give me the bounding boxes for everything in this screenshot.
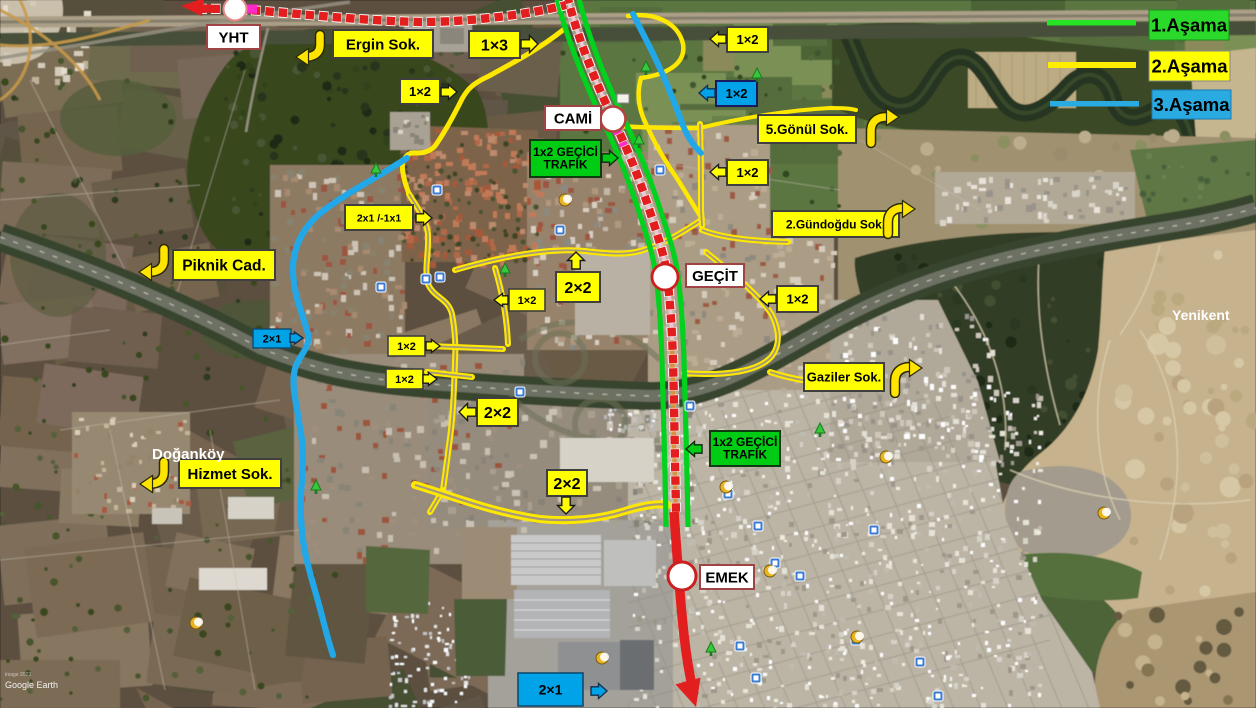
svg-text:1×2: 1×2 (736, 32, 758, 47)
svg-text:GEÇİT: GEÇİT (692, 268, 738, 285)
svg-text:1×2: 1×2 (397, 341, 416, 353)
svg-text:Hizmet Sok.: Hizmet Sok. (187, 466, 272, 483)
svg-text:Ergin Sok.: Ergin Sok. (346, 36, 420, 53)
svg-text:2×2: 2×2 (564, 280, 591, 297)
svg-text:image 2023: image 2023 (5, 672, 31, 678)
svg-text:TRAFİK: TRAFİK (723, 447, 767, 462)
svg-text:Google Earth: Google Earth (5, 680, 58, 690)
svg-text:2×1: 2×1 (539, 682, 563, 698)
svg-text:YHT: YHT (219, 29, 249, 46)
svg-text:5.Gönül Sok.: 5.Gönül Sok. (766, 122, 849, 137)
svg-text:CAMİ: CAMİ (554, 110, 592, 127)
svg-text:2×1: 2×1 (263, 333, 282, 345)
svg-text:1×2: 1×2 (395, 374, 414, 386)
svg-text:1×2: 1×2 (409, 84, 431, 99)
svg-text:3.Aşama: 3.Aşama (1153, 94, 1230, 115)
svg-text:1×2: 1×2 (518, 295, 537, 307)
svg-text:EMEK: EMEK (705, 569, 749, 586)
svg-text:Doğanköy: Doğanköy (152, 446, 225, 463)
svg-text:2.Gündoğdu Sok.: 2.Gündoğdu Sok. (786, 217, 885, 231)
svg-text:2x1 /-1x1: 2x1 /-1x1 (357, 212, 402, 224)
svg-text:1×3: 1×3 (481, 37, 508, 54)
svg-text:Piknik Cad.: Piknik Cad. (182, 258, 266, 275)
svg-text:1×2: 1×2 (736, 165, 758, 180)
svg-text:Gaziler Sok.: Gaziler Sok. (807, 370, 881, 385)
svg-text:1×2: 1×2 (786, 292, 808, 307)
svg-text:2.Aşama: 2.Aşama (1151, 56, 1228, 77)
svg-text:TRAFİK: TRAFİK (544, 157, 588, 172)
svg-text:1×2: 1×2 (725, 86, 747, 101)
svg-text:2×2: 2×2 (484, 405, 511, 422)
svg-text:2×2: 2×2 (553, 476, 580, 493)
svg-text:1.Aşama: 1.Aşama (1151, 15, 1228, 36)
svg-text:Yenikent: Yenikent (1172, 307, 1230, 323)
